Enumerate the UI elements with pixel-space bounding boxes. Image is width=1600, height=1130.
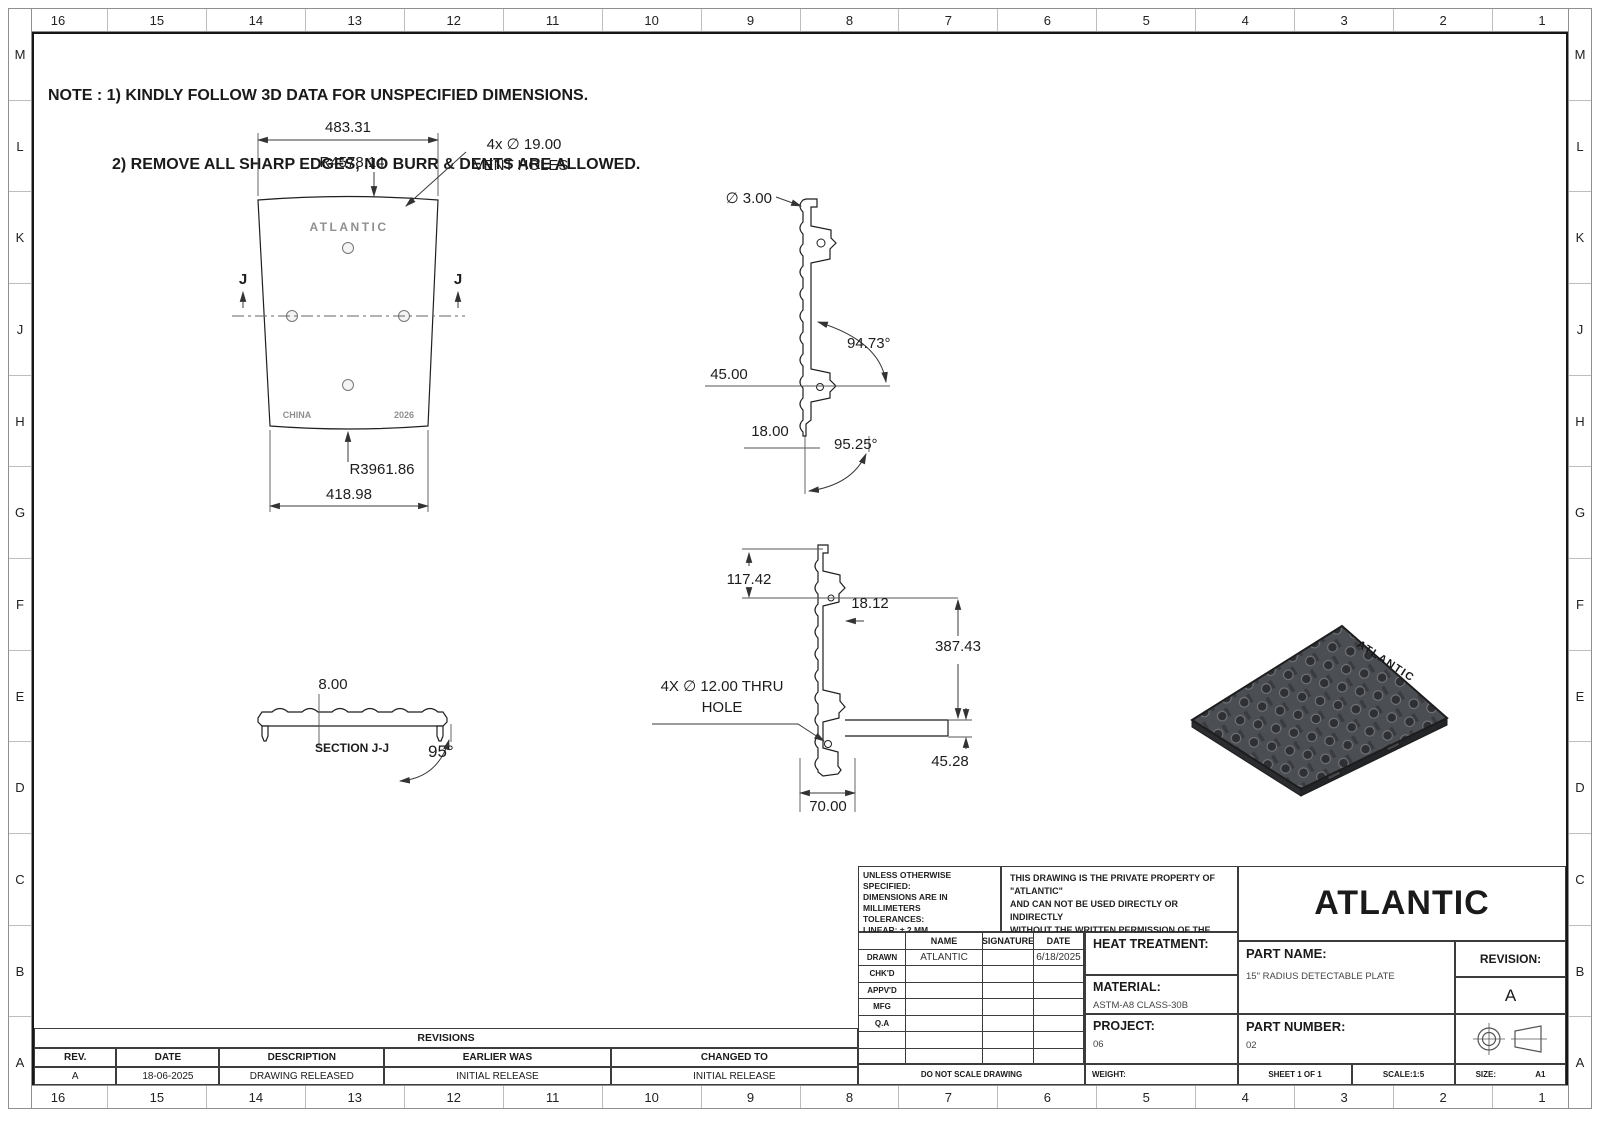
revisions-title: REVISIONS: [34, 1028, 858, 1048]
vent-callout-line1: 4x ∅ 19.00: [487, 136, 562, 153]
revisions-header: CHANGED TO: [611, 1048, 858, 1067]
tab-hole: [817, 239, 825, 247]
section-foot-left: [262, 726, 268, 741]
signoff-row-label: CHK'D: [859, 966, 906, 983]
signoff-date: [1034, 983, 1084, 1000]
signoff-empty: [859, 1032, 906, 1049]
signoff-empty: [983, 1049, 1034, 1066]
material-label: MATERIAL:: [1093, 980, 1230, 994]
third-angle-projection-icon: [1467, 1019, 1555, 1059]
dim-bottom-radius: R3961.86: [349, 461, 414, 478]
signoff-name: ATLANTIC: [906, 950, 983, 967]
side-view: ∅ 3.00 45.00 94.73° 18.00 95.25°: [705, 190, 891, 494]
signoff-corner: [859, 933, 906, 950]
emboss-origin: CHINA: [283, 410, 312, 420]
sheet-cell: SHEET 1 OF 1: [1238, 1064, 1352, 1085]
signoff-date: [1034, 966, 1084, 983]
signoff-signature: [983, 950, 1034, 967]
dim-bottom-width: 418.98: [326, 486, 372, 503]
signoff-signature: [983, 966, 1034, 983]
signoff-name: [906, 1016, 983, 1033]
signoff-signature: [983, 1016, 1034, 1033]
revision-header-cell: REVISION:: [1455, 941, 1566, 977]
size-label: SIZE:: [1476, 1070, 1496, 1079]
section-letter-right: J: [454, 271, 462, 288]
dim-angle: 95°: [428, 742, 454, 761]
heat-treatment-label: HEAT TREATMENT:: [1093, 937, 1230, 951]
dim-diameter: ∅ 3.00: [726, 190, 772, 207]
thru-hole-callout-line2: HOLE: [702, 699, 743, 716]
company-logo: ATLANTIC: [1238, 866, 1566, 941]
material-value: ASTM-A8 CLASS-30B: [1093, 1000, 1230, 1011]
revision-description: DRAWING RELEASED: [219, 1067, 384, 1085]
thru-hole: [825, 741, 832, 748]
revision-changed-to: INITIAL RELEASE: [611, 1067, 858, 1085]
dim-thickness: 8.00: [318, 676, 347, 693]
signoff-row-label: MFG: [859, 999, 906, 1016]
vent-hole: [343, 380, 354, 391]
do-not-scale-cell: DO NOT SCALE DRAWING: [858, 1064, 1085, 1085]
emboss-brand: ATLANTIC: [309, 220, 388, 234]
company-name: ATLANTIC: [1314, 884, 1489, 923]
side-profile: [800, 199, 836, 436]
sheet-text: SHEET 1 OF 1: [1268, 1070, 1321, 1079]
signoff-date: 6/18/2025: [1034, 950, 1084, 967]
dim-height: 387.43: [935, 638, 981, 655]
weight-cell: WEIGHT:: [1085, 1064, 1238, 1085]
section-letter-left: J: [239, 271, 247, 288]
dim-top: 117.42: [727, 571, 772, 588]
revisions-header: REV.: [34, 1048, 116, 1067]
signoff-empty: [1034, 1032, 1084, 1049]
isometric-view: ATLANTIC: [1192, 626, 1447, 796]
signoff-name: [906, 983, 983, 1000]
property-line: AND CAN NOT BE USED DIRECTLY OR INDIRECT…: [1010, 898, 1229, 924]
signoff-date: [1034, 999, 1084, 1016]
revisions-header: DATE: [116, 1048, 219, 1067]
section-jj-view: 8.00 SECTION J-J 95°: [258, 676, 454, 781]
project-cell: PROJECT: 06: [1085, 1014, 1238, 1064]
signoff-signature: [983, 983, 1034, 1000]
dim-top-width: 483.31: [325, 119, 371, 136]
title-block: UNLESS OTHERWISE SPECIFIED: DIMENSIONS A…: [858, 866, 1566, 1085]
signoff-table: NAME SIGNATURE DATE DRAWN ATLANTIC 6/18/…: [858, 932, 1085, 1064]
weight-label: WEIGHT:: [1092, 1070, 1126, 1079]
revision-value-cell: A: [1455, 977, 1566, 1014]
tolerance-line: TOLERANCES:: [863, 914, 996, 925]
signoff-name: [906, 999, 983, 1016]
size-value: A1: [1535, 1070, 1545, 1079]
material-cell: MATERIAL: ASTM-A8 CLASS-30B: [1085, 975, 1238, 1014]
tolerance-line: DIMENSIONS ARE IN MILLIMETERS: [863, 892, 996, 914]
dim-top-radius: R4578.14: [319, 154, 384, 171]
revision-date: 18-06-2025: [116, 1067, 219, 1085]
signoff-header-date: DATE: [1034, 933, 1084, 950]
dim-foot: 70.00: [809, 798, 847, 815]
vent-callout-line2: VENT HOLES: [474, 157, 569, 174]
thru-hole-callout-line1: 4X ∅ 12.00 THRU: [661, 678, 784, 695]
signoff-row-label: APPV'D: [859, 983, 906, 1000]
signoff-name: [906, 966, 983, 983]
plan-view: ATLANTIC CHINA 2026 483.31 R4578.14 4x ∅…: [232, 119, 568, 512]
revisions-header: DESCRIPTION: [219, 1048, 384, 1067]
property-statement: THIS DRAWING IS THE PRIVATE PROPERTY OF …: [1001, 866, 1238, 932]
drawing-sheet: 16 15 14 13 12 11 10 9 8 7 6 5 4 3 2 1 1…: [0, 0, 1600, 1130]
dim-angle-bottom: 95.25°: [834, 436, 878, 453]
part-name-label: PART NAME:: [1246, 946, 1447, 961]
part-number-label: PART NUMBER:: [1246, 1019, 1447, 1034]
signoff-row-label: DRAWN: [859, 950, 906, 967]
heat-treatment-cell: HEAT TREATMENT:: [1085, 932, 1238, 975]
revision-value: A: [1505, 986, 1516, 1006]
tolerance-line: UNLESS OTHERWISE SPECIFIED:: [863, 870, 996, 892]
section-foot-right: [437, 726, 443, 741]
dim-rail: 45.28: [931, 753, 969, 770]
dim-edge: 18.00: [751, 423, 789, 440]
tab-hole: [817, 384, 824, 391]
do-not-scale-text: DO NOT SCALE DRAWING: [921, 1070, 1022, 1079]
vent-hole: [343, 243, 354, 254]
dim-offset: 45.00: [710, 366, 748, 383]
signoff-header-signature: SIGNATURE: [983, 933, 1034, 950]
revision-label: REVISION:: [1456, 942, 1565, 976]
part-name-cell: PART NAME: 15" RADIUS DETECTABLE PLATE: [1238, 941, 1455, 1014]
scale-cell: SCALE:1:5: [1352, 1064, 1455, 1085]
signoff-empty: [906, 1049, 983, 1066]
signoff-row-label: Q.A: [859, 1016, 906, 1033]
section-label: SECTION J-J: [315, 741, 389, 755]
signoff-empty: [983, 1032, 1034, 1049]
revisions-header: EARLIER WAS: [384, 1048, 611, 1067]
iso-plate-top: [1192, 626, 1447, 789]
profile-view: 117.42 18.12 387.43 4X ∅ 12.00 THRU HOLE…: [652, 545, 981, 815]
size-cell: SIZE: A1: [1455, 1064, 1566, 1085]
part-number-cell: PART NUMBER: 02: [1238, 1014, 1455, 1064]
signoff-empty: [906, 1032, 983, 1049]
dim-tab: 18.12: [851, 595, 889, 612]
revisions-table: REVISIONS REV. DATE DESCRIPTION EARLIER …: [34, 1028, 858, 1085]
revision-rev: A: [34, 1067, 116, 1085]
section-strip: [258, 709, 447, 727]
signoff-date: [1034, 1016, 1084, 1033]
scale-text: SCALE:1:5: [1383, 1070, 1424, 1079]
signoff-header-name: NAME: [906, 933, 983, 950]
project-value: 06: [1093, 1039, 1230, 1050]
emboss-year: 2026: [394, 410, 414, 420]
signoff-signature: [983, 999, 1034, 1016]
part-number-value: 02: [1246, 1040, 1447, 1051]
property-line: THIS DRAWING IS THE PRIVATE PROPERTY OF …: [1010, 872, 1229, 898]
revision-earlier-was: INITIAL RELEASE: [384, 1067, 611, 1085]
project-label: PROJECT:: [1093, 1019, 1230, 1033]
part-name-value: 15" RADIUS DETECTABLE PLATE: [1246, 971, 1447, 982]
signoff-empty: [1034, 1049, 1084, 1066]
signoff-empty: [859, 1049, 906, 1066]
dim-angle-top: 94.73°: [847, 335, 891, 352]
revisions-header-row: REV. DATE DESCRIPTION EARLIER WAS CHANGE…: [34, 1048, 858, 1067]
tolerance-notes: UNLESS OTHERWISE SPECIFIED: DIMENSIONS A…: [858, 866, 1001, 932]
revisions-data-row: A 18-06-2025 DRAWING RELEASED INITIAL RE…: [34, 1067, 858, 1085]
projection-symbol-cell: [1455, 1014, 1566, 1064]
